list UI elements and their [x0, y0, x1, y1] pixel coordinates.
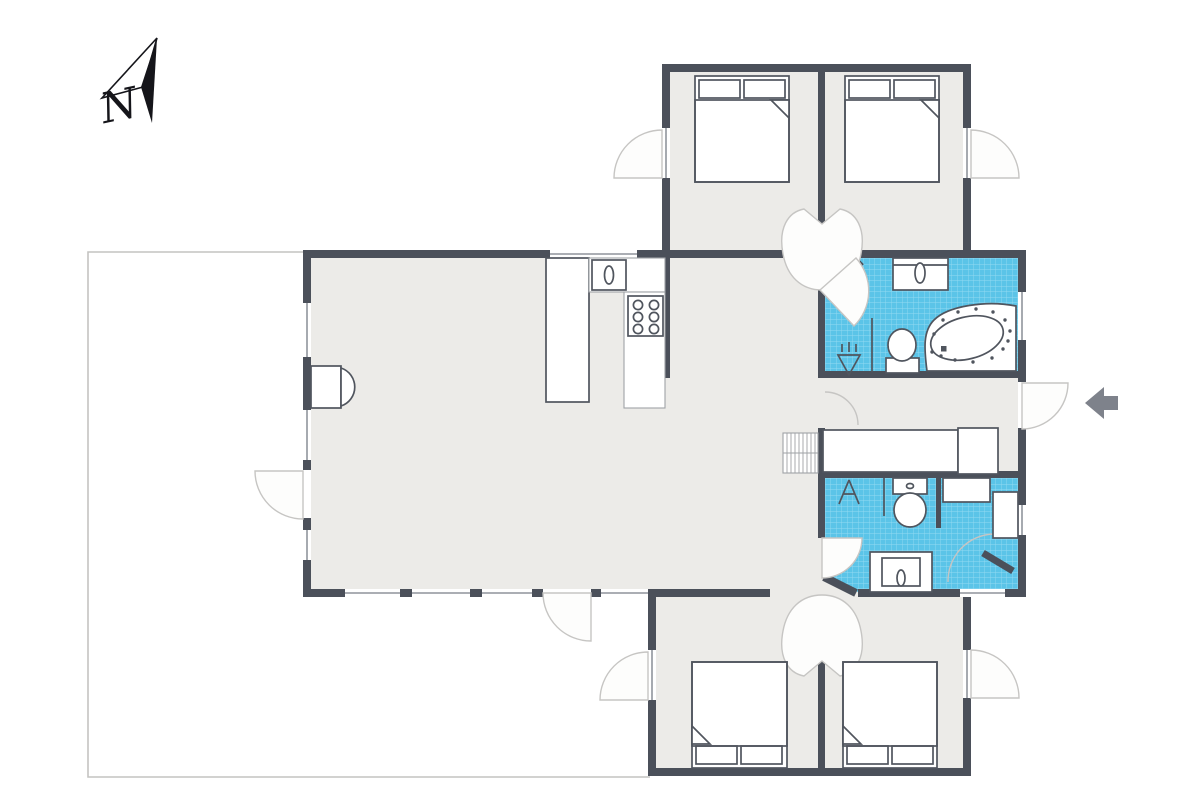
toilet-icon: [893, 478, 927, 527]
hall-wardrobe: [823, 428, 998, 474]
bedroom-bottom-right: [843, 662, 937, 768]
kitchen-window: [550, 250, 637, 258]
kitchen-sink-icon: [592, 260, 626, 290]
wardrobe-block: [958, 428, 998, 474]
pillow: [741, 746, 782, 764]
bedroom-top-left: [695, 76, 789, 182]
living-bottom-windows: [345, 589, 648, 597]
bedroom-bottom-left: [692, 662, 787, 768]
north-arrow: N: [95, 38, 157, 133]
entry-direction-icon: [1085, 387, 1118, 419]
shower-tray: [993, 492, 1018, 538]
bathroom-cabinet: [943, 478, 990, 502]
bedroom-top-right: [845, 76, 939, 182]
toilet-icon: [886, 329, 919, 373]
terrace-door: [255, 470, 311, 519]
entrance-arrow: [1085, 387, 1118, 419]
casement-arc: [600, 652, 648, 700]
entrance-door: [1018, 382, 1068, 429]
pillow: [744, 80, 785, 98]
top-bedrooms-divider-wall: [818, 72, 825, 224]
window: [963, 650, 1019, 698]
pillow: [892, 746, 933, 764]
fireplace-icon: [311, 366, 355, 408]
floor-plan-svg: N: [0, 0, 1200, 800]
window: [600, 650, 656, 700]
pillow: [699, 80, 740, 98]
casement-arc: [614, 130, 662, 178]
casement-arc: [971, 650, 1019, 698]
floor-plan-canvas: N: [0, 0, 1200, 800]
window: [963, 128, 1019, 178]
pillow: [696, 746, 737, 764]
staircase: [783, 433, 818, 473]
pillow: [894, 80, 935, 98]
pillow: [847, 746, 888, 764]
wardrobe-block: [823, 430, 958, 472]
casement-arc: [971, 130, 1019, 178]
vanity-sink-icon: [870, 552, 932, 592]
lower-bath-partition: [936, 478, 941, 528]
tall-cabinet: [546, 258, 589, 402]
bathroom-sink-icon: [893, 258, 948, 290]
stove-icon: [628, 296, 663, 336]
pillow: [849, 80, 890, 98]
tub-drain: [941, 346, 947, 352]
window: [614, 128, 670, 178]
garden-door: [543, 589, 591, 641]
